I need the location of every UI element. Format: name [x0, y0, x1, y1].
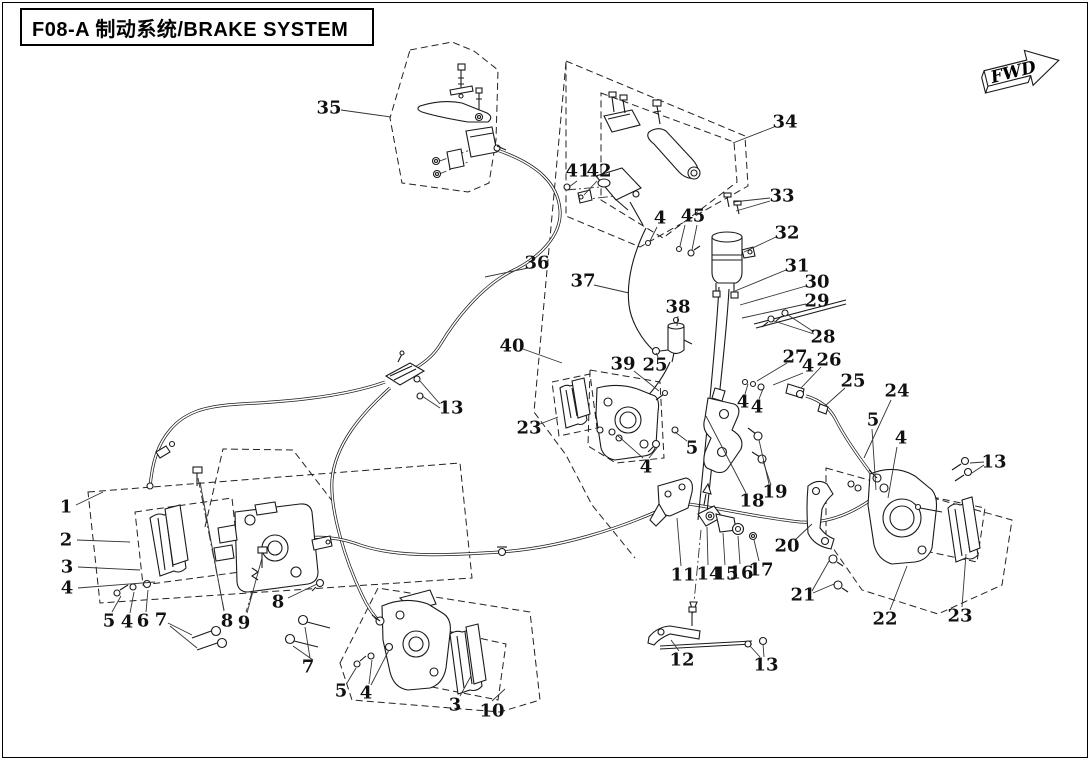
callout-19: 19	[762, 482, 787, 503]
callout-4: 4	[681, 206, 694, 227]
leader-line-4	[773, 373, 803, 385]
fluid-reservoir	[712, 193, 755, 298]
callout-5: 5	[693, 206, 706, 227]
callout-30: 30	[804, 272, 829, 293]
callout-4: 4	[895, 428, 908, 449]
callout-23: 23	[947, 606, 972, 627]
callout-20: 20	[774, 536, 799, 557]
callout-4: 4	[640, 457, 653, 478]
callout-4: 4	[61, 578, 74, 599]
callout-24: 24	[884, 381, 909, 402]
callout-3: 3	[449, 695, 462, 716]
callout-2: 2	[60, 530, 73, 551]
fwd-arrow: FWD	[978, 43, 1063, 97]
leader-line-34	[733, 127, 774, 143]
hose-junction-block	[386, 351, 424, 399]
fwd-label: FWD	[988, 57, 1039, 88]
leader-line-29	[742, 304, 806, 318]
leader-line-13	[420, 381, 440, 404]
leader-line-4	[369, 660, 372, 684]
leader-line-3	[78, 567, 140, 570]
leader-line-4	[130, 592, 134, 613]
callout-32: 32	[774, 223, 799, 244]
leader-line-5	[347, 668, 356, 683]
callout-8: 8	[221, 611, 234, 632]
brake-system-diagram: FWD 353637403839254142343332313029282742…	[0, 0, 1090, 760]
leader-line-14	[707, 527, 708, 565]
callout-4: 4	[654, 208, 667, 229]
callout-42: 42	[586, 161, 611, 182]
leader-line-23	[962, 554, 966, 607]
support-bracket	[807, 481, 848, 592]
leader-line-13	[422, 396, 440, 408]
leader-line-6	[146, 590, 148, 612]
leader-line-37	[594, 285, 629, 293]
callout-11: 11	[670, 565, 695, 586]
leader-line-16	[738, 536, 740, 564]
leader-line-41	[569, 181, 577, 187]
callout-39: 39	[610, 354, 635, 375]
callout-4: 4	[751, 397, 764, 418]
front-caliper-assembly	[286, 547, 508, 694]
leader-line-17	[754, 540, 759, 561]
leader-line-33	[733, 198, 770, 202]
callout-17: 17	[748, 560, 773, 581]
leader-line-23	[540, 417, 558, 424]
callout-22: 22	[872, 609, 897, 630]
callout-10: 10	[479, 701, 504, 722]
callout-25: 25	[642, 355, 667, 376]
title-box: F08-A 制动系统/BRAKE SYSTEM	[20, 8, 374, 46]
leader-line-7	[168, 623, 192, 635]
callout-7: 7	[302, 657, 315, 678]
callout-29: 29	[804, 291, 829, 312]
callout-40: 40	[499, 336, 524, 357]
callout-1: 1	[60, 497, 73, 518]
callout-12: 12	[669, 650, 694, 671]
callout-33: 33	[769, 186, 794, 207]
callout-5: 5	[686, 438, 699, 459]
leader-line-40	[523, 349, 562, 363]
leader-line-28	[774, 321, 814, 334]
callout-23: 23	[516, 418, 541, 439]
page-title: F08-A 制动系统/BRAKE SYSTEM	[32, 13, 348, 42]
leader-line-15	[723, 533, 725, 565]
callout-37: 37	[570, 271, 595, 292]
leader-line-35	[341, 110, 391, 117]
callout-25: 25	[840, 371, 865, 392]
leader-line-7	[305, 627, 310, 658]
leader-line-5	[692, 225, 697, 250]
callout-4: 4	[360, 683, 373, 704]
callout-21: 21	[790, 585, 815, 606]
parts-diagram-page: F08-A 制动系统/BRAKE SYSTEM	[0, 0, 1090, 760]
leader-line-32	[744, 237, 776, 252]
callout-26: 26	[816, 350, 841, 371]
callout-5: 5	[867, 410, 880, 431]
callout-6: 6	[137, 611, 150, 632]
leader-line-31	[735, 270, 786, 291]
leader-line-7	[170, 626, 197, 648]
callout-13: 13	[981, 452, 1006, 473]
right-caliper-assembly	[848, 458, 980, 565]
callout-4: 4	[121, 612, 134, 633]
callout-4: 4	[802, 356, 815, 377]
callout-9: 9	[238, 613, 251, 634]
callout-35: 35	[316, 98, 341, 119]
callout-7: 7	[155, 610, 168, 631]
callout-3: 3	[61, 557, 74, 578]
callout-18: 18	[739, 491, 764, 512]
callout-13: 13	[753, 655, 778, 676]
callout-36: 36	[524, 253, 549, 274]
parking-lever-rod	[648, 607, 767, 647]
callout-8: 8	[272, 592, 285, 613]
leader-line-2	[77, 540, 130, 542]
leader-line-11	[677, 518, 681, 566]
callout-38: 38	[665, 297, 690, 318]
callout-13: 13	[438, 398, 463, 419]
leader-line-4	[680, 225, 685, 246]
callout-5: 5	[103, 611, 116, 632]
callout-5: 5	[335, 681, 348, 702]
leader-line-21	[813, 584, 834, 593]
leader-line-30	[740, 286, 806, 305]
callout-28: 28	[810, 327, 835, 348]
callout-34: 34	[772, 112, 797, 133]
callout-4: 4	[737, 392, 750, 413]
